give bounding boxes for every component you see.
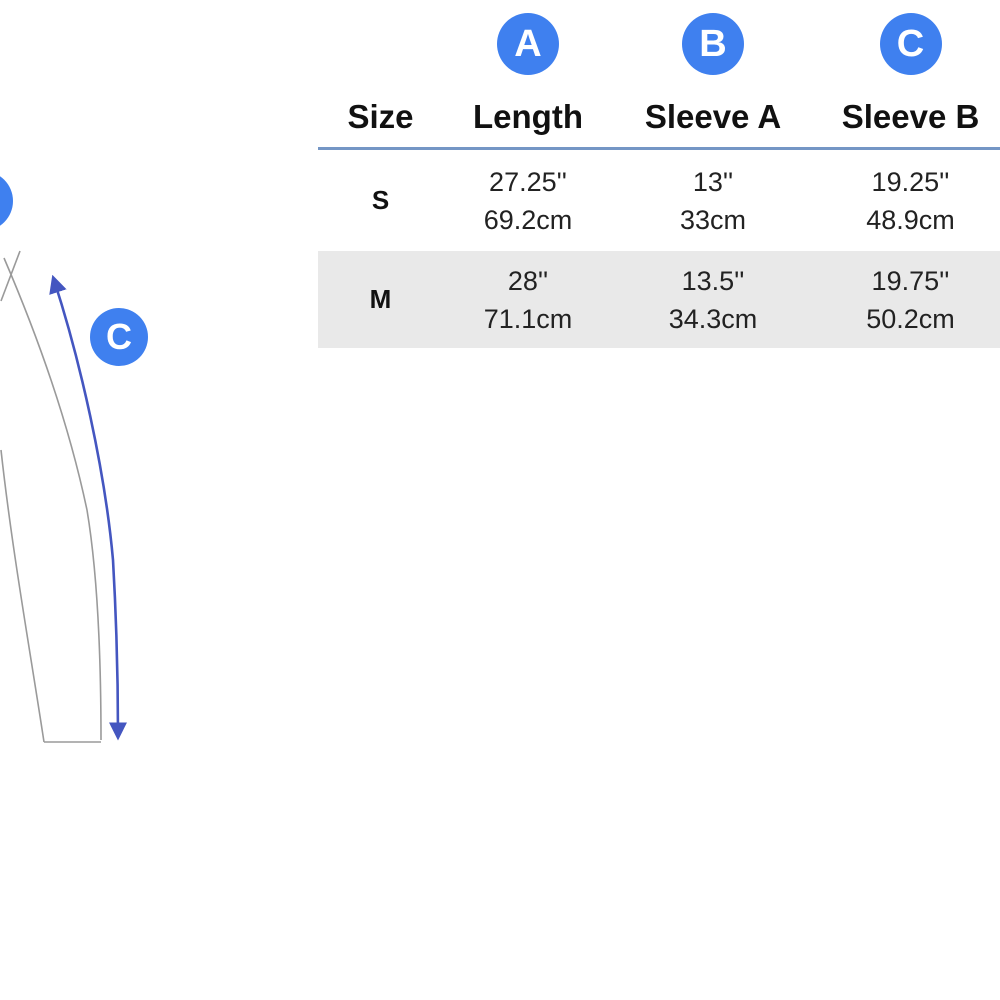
value-cm: 34.3cm [669, 300, 758, 338]
value-cm: 50.2cm [866, 300, 955, 338]
value-cm: 48.9cm [866, 201, 955, 239]
badge-a-icon: A [497, 13, 559, 75]
value-inches: 28'' [508, 262, 548, 300]
row-m-size-label: M [318, 284, 443, 315]
value-inches: 13'' [693, 163, 733, 201]
header-sleeve-b-label: Sleeve B [842, 99, 980, 135]
header-length: A Length [443, 0, 613, 147]
row-s-sleeve-a: 13'' 33cm [613, 163, 813, 239]
diagram-badge-c-label: C [106, 316, 132, 357]
badge-b-icon: B [682, 13, 744, 75]
header-size: Size [318, 0, 443, 147]
cropped-badge-icon [0, 171, 13, 231]
value-inches: 13.5'' [682, 262, 745, 300]
row-s-length: 27.25'' 69.2cm [443, 163, 613, 239]
value-inches: 19.75'' [872, 262, 950, 300]
row-m-length: 28'' 71.1cm [443, 262, 613, 338]
table-row-m: M 28'' 71.1cm 13.5'' 34.3cm 19.75'' 50.2… [318, 251, 1000, 348]
table-header-row: Size A Length B Sleeve A C Sleeve B [318, 0, 1000, 150]
value-inches: 27.25'' [489, 163, 567, 201]
value-cm: 33cm [680, 201, 746, 239]
table-row-s: S 27.25'' 69.2cm 13'' 33cm 19.25'' 48.9c… [318, 150, 1000, 251]
value-cm: 69.2cm [484, 201, 573, 239]
header-sleeve-a: B Sleeve A [613, 0, 813, 147]
row-s-size-label: S [318, 185, 443, 216]
size-chart-table: Size A Length B Sleeve A C Sleeve B S 27… [318, 0, 1000, 348]
header-size-label: Size [347, 99, 413, 135]
sleeve-inner-edge [1, 450, 44, 742]
header-length-label: Length [473, 99, 583, 135]
header-sleeve-a-label: Sleeve A [645, 99, 781, 135]
value-cm: 71.1cm [484, 300, 573, 338]
size-chart-screen: C Size A Length B Sleeve A C Sleeve B S [0, 0, 1000, 1000]
value-inches: 19.25'' [872, 163, 950, 201]
header-sleeve-b: C Sleeve B [813, 0, 1000, 147]
badge-c-icon: C [880, 13, 942, 75]
sleeve-outer-edge [4, 258, 101, 740]
row-m-sleeve-a: 13.5'' 34.3cm [613, 262, 813, 338]
garment-sleeve-diagram: C [0, 0, 220, 820]
row-s-sleeve-b: 19.25'' 48.9cm [813, 163, 1000, 239]
row-m-sleeve-b: 19.75'' 50.2cm [813, 262, 1000, 338]
